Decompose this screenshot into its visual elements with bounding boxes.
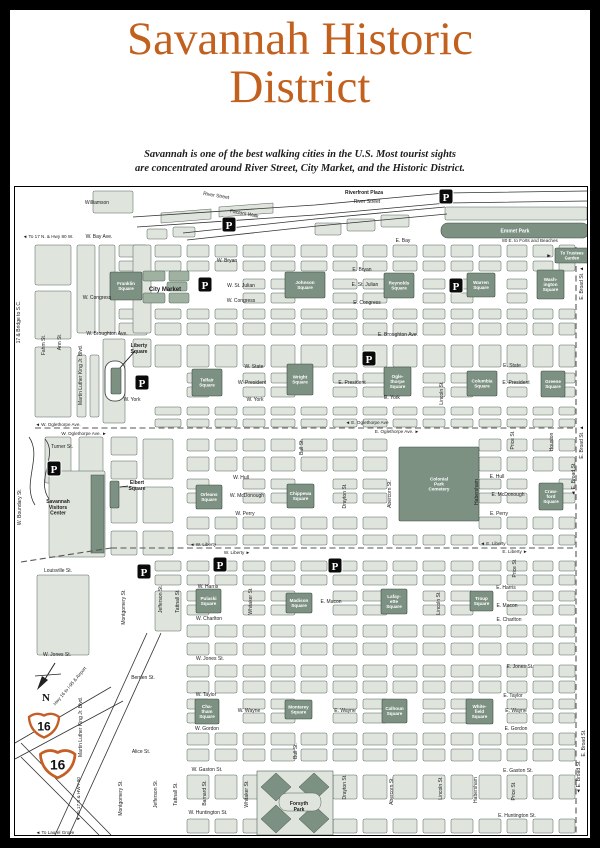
parking-icon-letter: P: [141, 567, 148, 579]
map-label: Price St.: [511, 782, 517, 801]
city-block: [147, 229, 167, 239]
city-block: [215, 749, 237, 761]
page-title: Savannah Historic District: [10, 16, 590, 112]
map-label: W. State: [245, 364, 264, 370]
city-block: [533, 309, 553, 319]
map-label: E. Gaston St.: [503, 768, 533, 774]
city-block: [243, 625, 265, 637]
city-block: [559, 665, 575, 677]
city-block: [393, 419, 417, 427]
city-block: [243, 643, 265, 655]
city-block: [143, 487, 173, 523]
map-label: W. Oglethorpe Ave. ►: [61, 431, 106, 436]
city-block: [243, 407, 265, 415]
city-block: [111, 437, 137, 455]
map-label: ◄ To Laurel Grove: [36, 830, 75, 835]
map-label: ElbertSquare: [129, 480, 146, 492]
city-block: [423, 625, 445, 637]
city-block: [243, 457, 265, 471]
map-label: Turner St.: [51, 444, 73, 450]
madison-square-label: MadisonSquare: [290, 598, 309, 608]
city-block: [559, 643, 575, 655]
map-label: Whitaker St.: [248, 587, 254, 614]
city-block: [243, 665, 265, 677]
city-block: [533, 261, 553, 271]
map-label: E. York: [384, 395, 400, 401]
city-block: [559, 439, 575, 451]
map-label: Montgomery St.: [118, 780, 124, 815]
city-block: [271, 457, 295, 471]
city-block: [559, 713, 575, 723]
greene-square-label: GreeneSquare: [545, 379, 561, 389]
calhoun-square-label: CalhounSquare: [385, 706, 404, 716]
city-block: [533, 575, 553, 585]
map-label: Alice St.: [132, 749, 150, 755]
city-block: [451, 261, 473, 271]
city-block: [393, 575, 417, 585]
city-block: [363, 643, 387, 655]
city-block: [111, 531, 137, 555]
city-block: [507, 749, 527, 761]
city-block: [301, 323, 327, 335]
liberty-square-strip: [111, 368, 121, 394]
city-block: [187, 749, 209, 761]
city-block: [215, 819, 237, 833]
city-block: [533, 591, 553, 601]
city-block: [423, 261, 445, 271]
city-block: [333, 407, 357, 415]
city-block: [243, 387, 265, 397]
map-label: W. Gordon: [195, 726, 219, 732]
city-block: [90, 355, 99, 417]
troup-square-label: TroupSquare: [474, 596, 490, 606]
city-block: [271, 561, 295, 571]
franklin-square-label: FranklinSquare: [117, 281, 135, 291]
parking-icon-letter: P: [443, 192, 450, 204]
map-label: Price St.: [510, 431, 516, 450]
columbia-square-label: ColumbiaSquare: [472, 379, 493, 389]
orleans-square-label: OrleansSquare: [200, 492, 218, 502]
city-block: [363, 407, 387, 415]
city-block: [533, 733, 553, 745]
city-block: [215, 407, 237, 415]
johnson-square-label: JohnsonSquare: [295, 280, 314, 290]
city-block: [479, 309, 501, 319]
city-block: [215, 439, 237, 451]
city-block: [215, 625, 237, 637]
city-block: [333, 713, 357, 723]
map-label: W. St. Julian: [227, 283, 255, 289]
map-label: Lincoln St.: [436, 591, 442, 614]
map-label: Abercorn St.: [389, 777, 395, 805]
city-block: [559, 517, 575, 529]
city-block: [215, 419, 237, 427]
city-block: [187, 625, 209, 637]
city-block: [479, 733, 501, 745]
city-block: [187, 643, 209, 655]
city-block: [271, 245, 295, 257]
wright-square-label: WrightSquare: [292, 375, 308, 385]
city-block: [507, 819, 527, 833]
map-label: E. President: [502, 380, 530, 386]
city-block: [423, 699, 445, 709]
city-block: [243, 713, 265, 723]
city-block: [423, 245, 445, 257]
city-block: [215, 665, 237, 677]
city-block: [333, 749, 357, 761]
city-block: [451, 643, 473, 655]
city-block: [187, 665, 209, 677]
map-label: W. Boundary St.: [17, 489, 23, 525]
city-block: [37, 575, 89, 655]
city-block: [187, 345, 209, 367]
map-label: E. Congress: [353, 300, 381, 306]
map-label: W. President: [238, 380, 267, 386]
city-block: [301, 261, 327, 271]
city-block: [333, 345, 357, 367]
city-block: [243, 309, 265, 319]
city-block: [187, 309, 209, 319]
city-block: [393, 749, 417, 761]
map-label: E. State: [503, 363, 521, 369]
city-block: [301, 575, 327, 585]
city-block: [243, 439, 265, 451]
city-block: [301, 419, 327, 427]
map-label: E. Broughton Ave.: [378, 332, 418, 338]
city-block: [451, 345, 473, 367]
map-label: W. Congress: [83, 295, 112, 301]
city-block: [479, 457, 501, 471]
emmet-park-label: Emmet Park: [501, 228, 530, 234]
city-market-block: [143, 271, 165, 281]
city-block: [271, 681, 295, 693]
map-label: Jefferson St.: [153, 780, 159, 808]
map-label: E. Harris: [496, 585, 516, 591]
city-block: [301, 643, 327, 655]
city-block: [507, 293, 527, 303]
map-label: W. York: [124, 397, 141, 403]
city-block: [301, 535, 327, 545]
city-block: [533, 749, 553, 761]
city-block: [533, 345, 553, 367]
city-block: [559, 561, 575, 571]
city-block: [423, 643, 445, 655]
city-block: [215, 345, 237, 367]
city-block: [243, 535, 265, 545]
city-block: [533, 561, 553, 571]
elbert-square-strip: [110, 481, 119, 508]
city-block: [363, 575, 387, 585]
map-label: Ann St.: [57, 334, 63, 350]
city-block: [479, 749, 501, 761]
city-block: [243, 605, 265, 615]
city-block: [77, 245, 95, 333]
city-block: [451, 749, 473, 761]
map-label: W. Hull: [233, 475, 249, 481]
city-block: [451, 419, 473, 427]
city-block: [423, 279, 445, 289]
city-block: [479, 419, 501, 427]
map-label: E. St. Julian: [352, 282, 379, 288]
city-block: [533, 407, 553, 415]
map-label: ◄ E. Broad St.: [576, 760, 582, 793]
city-block: [533, 681, 553, 693]
city-block: [451, 775, 473, 799]
city-block: [423, 407, 445, 415]
city-block: [187, 733, 209, 745]
warren-square-label: WarrenSquare: [473, 280, 489, 290]
map-label: W. Perry: [235, 511, 255, 517]
city-block: [301, 625, 327, 637]
city-block: [333, 517, 357, 529]
map-label: E. Gordon: [505, 726, 528, 732]
oglethorpe-square-label: Ogle-thorpeSquare: [390, 374, 406, 389]
city-block: [559, 407, 575, 415]
city-block: [507, 625, 527, 637]
title-line-2: District: [10, 64, 590, 112]
city-block: [423, 535, 445, 545]
city-block: [215, 535, 237, 545]
map-label: Berrien St.: [131, 675, 155, 681]
city-block: [301, 309, 327, 319]
city-block: [507, 419, 527, 427]
city-block: [363, 775, 387, 799]
city-block: [215, 309, 237, 319]
city-block: [155, 309, 181, 319]
city-block: [187, 323, 209, 335]
map-label: E. Broad St. ▲: [579, 425, 585, 458]
city-block: [533, 713, 553, 723]
map-label: ◄ W. Liberty: [190, 542, 217, 547]
city-block: [393, 681, 417, 693]
map-label: Houston: [549, 432, 555, 451]
city-block: [393, 625, 417, 637]
city-block: [271, 575, 295, 585]
city-block: [451, 407, 473, 415]
city-block: [301, 681, 327, 693]
map-label: Martin Luther King Jr. Blvd.: [78, 345, 84, 405]
city-block: [363, 245, 387, 257]
map-label: E. Taylor: [503, 693, 523, 699]
map-label: Louisville St.: [44, 568, 72, 574]
city-block: [271, 419, 295, 427]
city-block: [479, 439, 501, 451]
city-block: [243, 517, 265, 529]
city-block: [393, 407, 417, 415]
map-label: W. York: [247, 397, 264, 403]
city-block: [423, 345, 445, 367]
city-block: [243, 733, 265, 745]
city-block: [423, 665, 445, 677]
map-label: E. Bay: [396, 238, 411, 244]
city-block: [35, 291, 71, 339]
map-label: Tattnall St.: [173, 782, 179, 805]
city-block: [155, 245, 181, 257]
city-block: [363, 535, 387, 545]
city-block: [533, 457, 553, 471]
city-block: [187, 439, 209, 451]
map-label: ◄ E. Broad St.: [571, 462, 577, 495]
city-block: [155, 407, 181, 415]
city-block: [187, 245, 209, 257]
city-block: [479, 819, 501, 833]
telfair-square-label: TelfairSquare: [199, 378, 215, 388]
city-block: [393, 245, 417, 257]
map-label: City Market: [149, 287, 181, 293]
city-block: [479, 261, 501, 271]
city-block: [243, 245, 265, 257]
city-block: [363, 373, 387, 383]
map-label: W. McDonough: [230, 493, 264, 499]
map-label: ◄ E. Liberty: [480, 541, 506, 546]
city-block: [155, 575, 181, 585]
city-block: [559, 749, 575, 761]
city-block: [363, 517, 387, 529]
city-block: [479, 681, 501, 693]
city-block: [333, 605, 357, 615]
city-block: [35, 245, 71, 285]
city-block: [533, 535, 553, 545]
city-block: [155, 323, 181, 335]
city-block: [559, 323, 575, 335]
city-block: [363, 819, 387, 833]
city-block: [507, 681, 527, 693]
map-label: W. Jones St.: [196, 656, 224, 662]
savannah-map: Emmet ParkTo TrusteesGardenFranklinSquar…: [14, 186, 588, 836]
map-label: ▼ To 17 S & HWY 80: [76, 777, 81, 821]
map-label: E. Wayne: [334, 708, 356, 714]
city-block: [479, 561, 501, 571]
city-block: [479, 517, 501, 529]
city-block: [479, 479, 501, 489]
city-block: [363, 439, 387, 451]
city-block: [271, 625, 295, 637]
city-block: [451, 681, 473, 693]
city-block: [301, 749, 327, 761]
shield-number: 16: [37, 720, 51, 734]
city-block: [559, 591, 575, 601]
city-block: [423, 749, 445, 761]
city-block: [559, 681, 575, 693]
city-block: [393, 535, 417, 545]
map-label: ◄ E. Oglethorpe Ave: [345, 420, 388, 425]
city-block: [479, 625, 501, 637]
map-label: LibertySquare: [131, 343, 148, 355]
map-label: W. Broughton Ave.: [86, 331, 127, 337]
parking-icon-letter: P: [453, 281, 460, 293]
map-label: E. McDonough: [491, 492, 524, 498]
city-block: [423, 561, 445, 571]
city-block: [363, 493, 387, 503]
city-block: [301, 733, 327, 745]
map-label: E. Macon: [320, 599, 341, 605]
city-block: [271, 261, 295, 271]
map-label: W. Charlton: [196, 616, 222, 622]
poster: { "title": {"line1": "Savannah Historic"…: [0, 0, 600, 848]
city-block: [215, 733, 237, 745]
map-label: Montgomery St.: [121, 589, 127, 624]
city-block: [423, 419, 445, 427]
city-block: [559, 345, 575, 367]
city-block: [533, 605, 553, 615]
city-block: [507, 245, 527, 257]
parking-icon-letter: P: [139, 378, 146, 390]
city-block: [301, 561, 327, 571]
map-label: Williamson: [85, 200, 109, 206]
city-block: [479, 665, 501, 677]
city-block: [479, 775, 501, 799]
map-label: W. Liberty ►: [224, 550, 250, 555]
city-block: [423, 323, 445, 335]
city-block: [363, 665, 387, 677]
city-block: [243, 749, 265, 761]
map-label: E. Jones St.: [507, 664, 534, 670]
city-block: [559, 699, 575, 709]
city-block: [215, 457, 237, 471]
city-block: [333, 387, 357, 397]
map-label: Bull St.: [299, 439, 305, 455]
city-block: [215, 245, 237, 257]
map-label: E. Bryan: [352, 267, 371, 273]
city-block: [507, 407, 527, 415]
city-block: [533, 665, 553, 677]
city-block: [393, 819, 417, 833]
city-block: [363, 479, 387, 489]
city-block: [479, 407, 501, 415]
map-label: E. Broad St. ▲: [579, 266, 585, 299]
map-label: Tattnall St.: [175, 589, 181, 612]
map-label: E. Perry: [490, 511, 509, 517]
city-block: [393, 345, 417, 367]
city-block: [215, 643, 237, 655]
map-label: W. Huntington St.: [189, 810, 228, 816]
map-label: Fahm St.: [41, 335, 47, 355]
page-subtitle: Savannah is one of the best walking citi…: [10, 148, 590, 176]
city-block: [243, 591, 265, 601]
city-block: [271, 407, 295, 415]
city-block: [155, 419, 181, 427]
city-block: [559, 819, 575, 833]
washington-square-label: Wash-ingtonSquare: [543, 277, 559, 292]
city-block: [533, 775, 553, 799]
visitors-center-strip: [91, 475, 104, 553]
city-block: [215, 517, 237, 529]
city-block: [243, 575, 265, 585]
city-market-block: [169, 293, 189, 303]
map-label: E. Macon: [496, 603, 517, 609]
city-block: [301, 517, 327, 529]
map-label: E. Broad St.: [581, 730, 587, 757]
city-block: [559, 625, 575, 637]
city-market-block: [143, 293, 165, 303]
city-block: [215, 775, 237, 799]
map-label: Lincoln St.: [439, 381, 445, 404]
city-block: [479, 575, 501, 585]
city-block: [187, 407, 209, 415]
city-block: [507, 309, 527, 319]
city-block: [533, 643, 553, 655]
city-block: [423, 309, 445, 319]
city-block: [155, 261, 181, 271]
map-label: ◄ W. Oglethorpe Ave.: [35, 422, 80, 427]
parking-icon-letter: P: [226, 220, 233, 232]
city-block: [393, 665, 417, 677]
map-canvas: Emmet ParkTo TrusteesGardenFranklinSquar…: [15, 187, 587, 835]
city-block: [451, 535, 473, 545]
city-block: [507, 535, 527, 545]
city-block: [243, 681, 265, 693]
city-block: [111, 461, 137, 479]
